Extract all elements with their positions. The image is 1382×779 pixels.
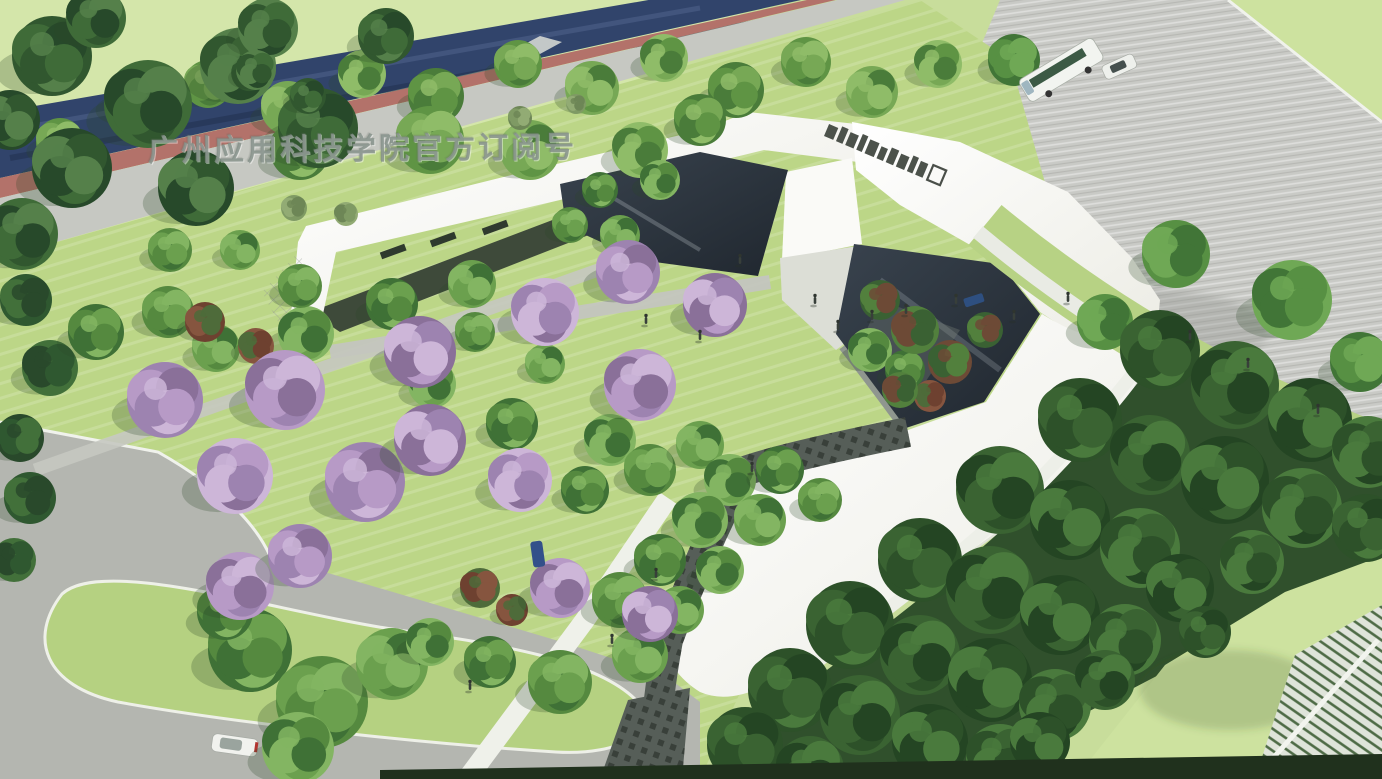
rendering-canvas: 广州应用科技学院官方订阅号 <box>0 0 1382 779</box>
roof-gap-band <box>782 158 862 260</box>
scene-svg <box>0 0 1382 779</box>
